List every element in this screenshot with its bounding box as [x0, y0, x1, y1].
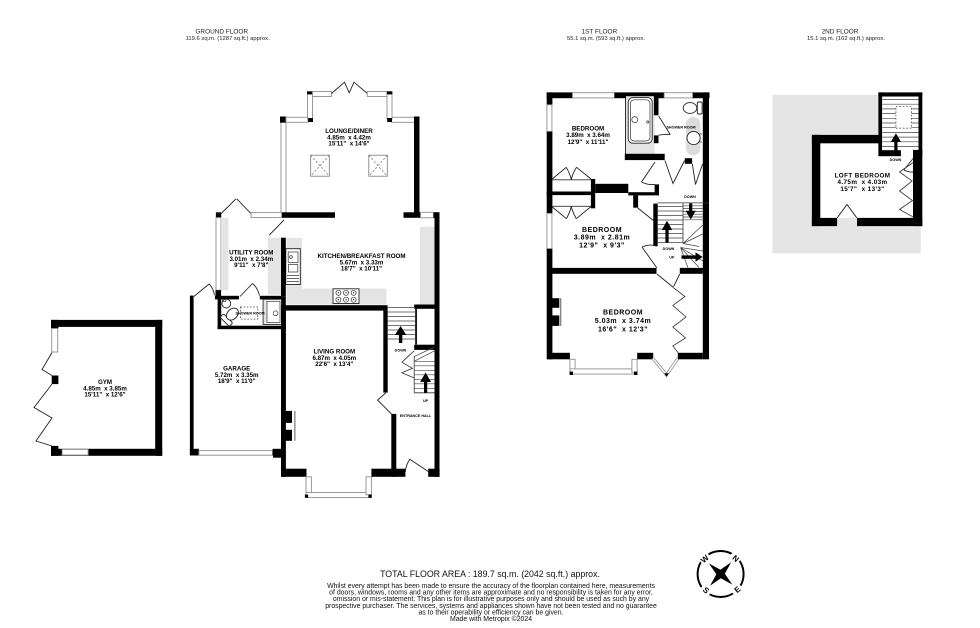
svg-text:2ND FLOOR: 2ND FLOOR [822, 29, 859, 36]
svg-text:12'9" x 11'11": 12'9" x 11'11" [568, 139, 609, 146]
svg-text:DOWN: DOWN [395, 349, 407, 353]
svg-text:15'11" x 14'6": 15'11" x 14'6" [328, 141, 369, 148]
svg-text:BEDROOM: BEDROOM [603, 309, 643, 316]
svg-text:UP: UP [423, 399, 429, 403]
svg-text:DOWN: DOWN [890, 158, 902, 162]
svg-text:BEDROOM: BEDROOM [582, 227, 622, 234]
svg-text:DOWN: DOWN [684, 195, 696, 199]
svg-text:1ST FLOOR: 1ST FLOOR [582, 29, 618, 36]
svg-text:18'9" x 11'0": 18'9" x 11'0" [218, 378, 256, 385]
svg-text:18'7" x 10'11": 18'7" x 10'11" [341, 266, 382, 273]
svg-text:3.89m x 2.81m: 3.89m x 2.81m [574, 235, 630, 242]
svg-text:15'11" x 12'6": 15'11" x 12'6" [84, 392, 125, 399]
svg-text:12'9" x 9'3": 12'9" x 9'3" [579, 243, 625, 250]
svg-text:5.03m x 3.74m: 5.03m x 3.74m [595, 318, 651, 325]
svg-text:16'6" x 12'3": 16'6" x 12'3" [598, 326, 648, 333]
svg-text:15'7" x 13'3": 15'7" x 13'3" [840, 186, 884, 193]
svg-text:15.1 sq.m. (162 sq.ft.) approx: 15.1 sq.m. (162 sq.ft.) approx. [807, 36, 885, 42]
svg-text:9'11" x 7'8": 9'11" x 7'8" [234, 262, 268, 269]
svg-text:55.1 sq.m. (593 sq.ft.) approx: 55.1 sq.m. (593 sq.ft.) approx. [567, 36, 645, 42]
svg-text:ENTRANCE HALL: ENTRANCE HALL [400, 414, 432, 418]
svg-text:Made with Metropix ©2024: Made with Metropix ©2024 [450, 615, 532, 623]
svg-text:22'6" x 13'4": 22'6" x 13'4" [315, 361, 353, 368]
svg-text:UP: UP [669, 255, 675, 259]
svg-text:SHOWER ROOM: SHOWER ROOM [666, 126, 695, 130]
svg-text:TOTAL FLOOR AREA : 189.7 sq.m.: TOTAL FLOOR AREA : 189.7 sq.m. (2042 sq.… [380, 569, 600, 579]
svg-text:SHOWER ROOM: SHOWER ROOM [235, 312, 264, 316]
svg-text:119.6 sq.m. (1287 sq.ft.) appr: 119.6 sq.m. (1287 sq.ft.) approx. [186, 36, 270, 42]
svg-text:GROUND FLOOR: GROUND FLOOR [195, 29, 248, 36]
svg-text:DOWN: DOWN [663, 247, 675, 251]
